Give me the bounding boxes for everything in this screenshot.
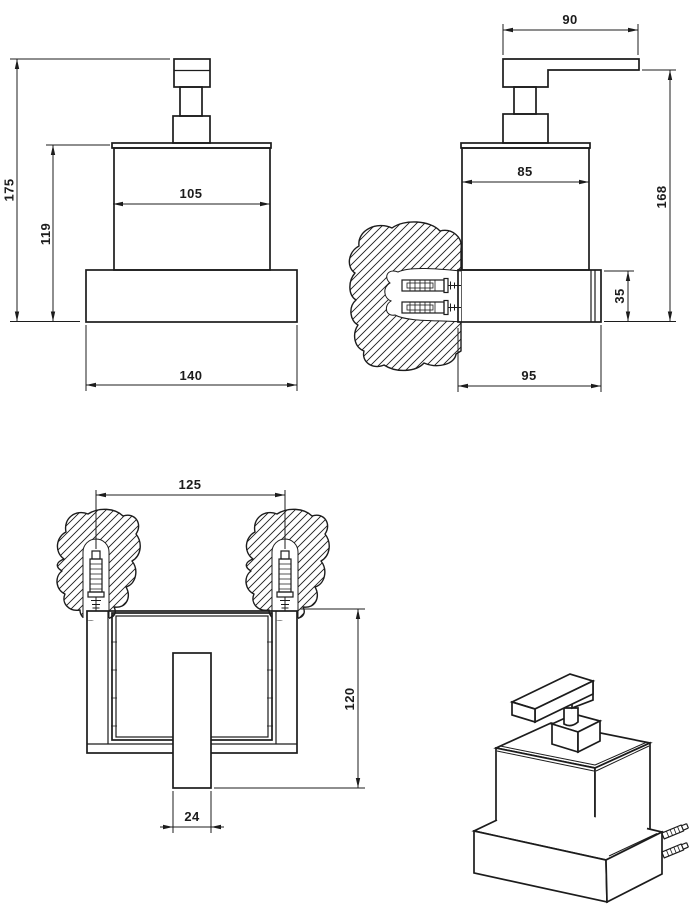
wall-section-left xyxy=(57,490,140,620)
side-pump-collar xyxy=(503,114,548,143)
side-pump-lever xyxy=(503,59,639,87)
dim-side-overall-height: 168 xyxy=(604,70,676,322)
dim-label-140: 140 xyxy=(180,368,203,383)
dim-front-body-width: 105 xyxy=(113,186,270,206)
iso-screw xyxy=(662,842,689,858)
dim-label-175: 175 xyxy=(2,179,17,202)
technical-drawing-canvas: 175 119 105 140 xyxy=(0,0,700,912)
dim-front-body-height: 119 xyxy=(38,145,110,322)
front-holder-base xyxy=(86,270,297,322)
side-pump-stem xyxy=(514,87,536,114)
dim-front-base-width: 140 xyxy=(86,325,297,391)
iso-screw xyxy=(662,823,689,839)
dim-label-105: 105 xyxy=(180,186,203,201)
front-body xyxy=(114,148,270,270)
front-pump-head xyxy=(173,59,210,143)
dim-label-85: 85 xyxy=(517,164,532,179)
dim-label-125: 125 xyxy=(179,477,202,492)
dim-label-119: 119 xyxy=(38,223,53,245)
dim-top-fixing-spacing: 125 xyxy=(96,477,285,497)
wall-section-right xyxy=(246,490,329,620)
dim-label-120: 120 xyxy=(342,688,357,711)
side-holder-lip-lines xyxy=(591,270,595,322)
dim-side-lever-length: 90 xyxy=(503,12,638,55)
dim-label-168: 168 xyxy=(654,186,669,209)
dim-side-holder-height: 35 xyxy=(604,271,634,322)
dim-top-spout-width: 24 xyxy=(160,791,224,833)
soap-dispenser-dimension-drawing: 175 119 105 140 xyxy=(0,0,700,912)
dim-label-90: 90 xyxy=(562,12,577,27)
dim-label-24: 24 xyxy=(184,809,200,824)
iso-stem xyxy=(564,708,578,726)
side-holder xyxy=(458,270,601,322)
top-spout xyxy=(173,653,211,788)
side-view: 90 85 168 35 95 xyxy=(349,12,676,392)
iso-view xyxy=(474,674,689,902)
dim-label-95: 95 xyxy=(521,368,536,383)
dim-label-35: 35 xyxy=(612,288,627,303)
front-view: 175 119 105 140 xyxy=(2,59,298,391)
dim-side-body-depth: 85 xyxy=(462,164,589,184)
dim-side-holder-depth: 95 xyxy=(458,325,601,392)
drill-pocket xyxy=(385,268,461,322)
top-view: 125 120 24 xyxy=(57,477,365,833)
dim-top-overall-depth: 120 xyxy=(214,609,365,788)
